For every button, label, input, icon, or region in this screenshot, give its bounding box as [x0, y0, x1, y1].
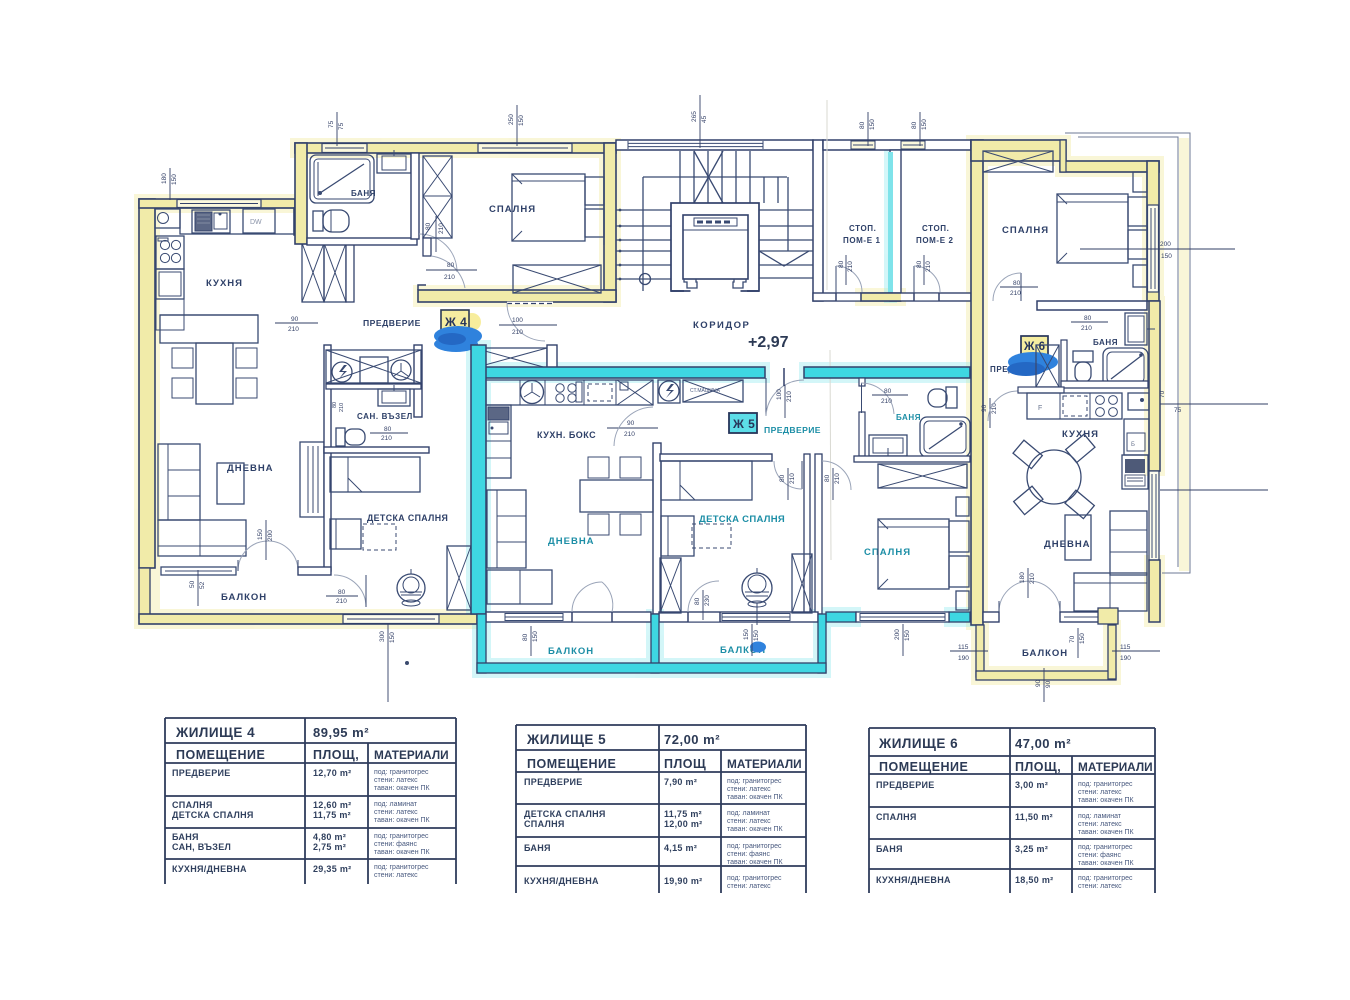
svg-text:СПАЛНЯ: СПАЛНЯ: [876, 812, 917, 822]
svg-text:стени: латекс: стени: латекс: [727, 786, 771, 793]
svg-text:стени: латекс: стени: латекс: [1078, 821, 1122, 828]
svg-text:под: ламинат: под: ламинат: [374, 801, 418, 808]
svg-text:150: 150: [743, 629, 750, 640]
svg-text:ДЕТСКА СПАЛНЯ: ДЕТСКА СПАЛНЯ: [367, 513, 448, 523]
svg-text:12,70 m²: 12,70 m²: [313, 768, 351, 778]
svg-text:ПОМЕЩЕНИЕ: ПОМЕЩЕНИЕ: [527, 757, 616, 771]
svg-text:под: гранитогрес: под: гранитогрес: [1078, 875, 1133, 882]
svg-text:72,00 m²: 72,00 m²: [664, 732, 720, 747]
svg-text:200: 200: [267, 530, 274, 541]
svg-text:ДЕТСКА СПАЛНЯ: ДЕТСКА СПАЛНЯ: [524, 809, 606, 819]
svg-text:БАНЯ: БАНЯ: [1093, 338, 1118, 347]
svg-text:Ж 6: Ж 6: [1023, 341, 1046, 353]
svg-text:11,75 m²: 11,75 m²: [313, 810, 351, 820]
svg-text:150: 150: [518, 115, 525, 126]
svg-text:под: гранитогрес: под: гранитогрес: [727, 875, 782, 882]
svg-text:90: 90: [1035, 679, 1042, 687]
svg-text:115: 115: [958, 644, 969, 651]
svg-text:4,15 m²: 4,15 m²: [664, 843, 697, 853]
svg-text:210: 210: [881, 398, 892, 405]
svg-text:стени: латекс: стени: латекс: [727, 818, 771, 825]
svg-text:80: 80: [779, 474, 786, 482]
svg-text:7,90 m²: 7,90 m²: [664, 777, 697, 787]
svg-text:МАТЕРИАЛИ: МАТЕРИАЛИ: [1078, 760, 1153, 774]
svg-text:210: 210: [336, 598, 347, 605]
svg-text:ПОМ-Е 2: ПОМ-Е 2: [916, 236, 954, 245]
svg-text:ПЛОЩ: ПЛОЩ: [664, 757, 706, 771]
svg-text:ПРЕДВЕРИЕ: ПРЕДВЕРИЕ: [524, 777, 583, 787]
svg-text:4,80 m²: 4,80 m²: [313, 832, 346, 842]
svg-text:БАЛКОН: БАЛКОН: [1022, 648, 1068, 659]
svg-text:150: 150: [921, 119, 928, 130]
svg-text:под: гранитогрес: под: гранитогрес: [727, 843, 782, 850]
svg-text:БАЛКОН: БАЛКОН: [548, 646, 594, 657]
svg-text:75: 75: [328, 120, 335, 128]
svg-text:150: 150: [389, 632, 396, 643]
svg-text:таван: окачен ПК: таван: окачен ПК: [374, 817, 431, 824]
svg-text:ПРЕДВЕРИЕ: ПРЕДВЕРИЕ: [172, 768, 231, 778]
svg-text:11,75 m²: 11,75 m²: [664, 809, 702, 819]
svg-text:180: 180: [1019, 572, 1026, 583]
svg-text:12,00 m²: 12,00 m²: [664, 819, 702, 829]
svg-text:45: 45: [701, 115, 708, 123]
svg-text:СПАЛНЯ: СПАЛНЯ: [172, 800, 213, 810]
svg-text:80: 80: [916, 260, 923, 268]
svg-text:БАНЯ: БАНЯ: [172, 832, 199, 842]
svg-text:11,50 m²: 11,50 m²: [1015, 812, 1053, 822]
svg-text:210: 210: [512, 329, 523, 336]
svg-text:КУХН. БОКС: КУХН. БОКС: [537, 430, 596, 440]
svg-text:под: гранитогрес: под: гранитогрес: [374, 864, 429, 871]
svg-text:29,35 m²: 29,35 m²: [313, 864, 351, 874]
svg-text:80: 80: [338, 589, 346, 596]
svg-text:90: 90: [1045, 680, 1052, 688]
svg-text:БАНЯ: БАНЯ: [896, 413, 921, 422]
svg-text:250: 250: [508, 114, 515, 125]
svg-text:210: 210: [288, 326, 299, 333]
svg-text:210: 210: [444, 274, 455, 281]
svg-text:БАНЯ: БАНЯ: [351, 189, 376, 198]
svg-text:150: 150: [1079, 633, 1086, 644]
svg-text:таван: окачен ПК: таван: окачен ПК: [1078, 829, 1135, 836]
svg-text:210: 210: [1081, 325, 1092, 332]
svg-text:80: 80: [447, 262, 455, 269]
svg-text:150: 150: [532, 631, 539, 642]
svg-text:СТ.МАШИНА: СТ.МАШИНА: [690, 388, 721, 394]
svg-text:ПЛОЩ,: ПЛОЩ,: [1015, 760, 1061, 774]
svg-text:стени: латекс: стени: латекс: [374, 872, 418, 879]
svg-text:210: 210: [834, 473, 841, 484]
svg-text:Б: Б: [1131, 442, 1135, 448]
svg-text:DW: DW: [250, 219, 262, 226]
svg-text:ПРЕДВЕРИЕ: ПРЕДВЕРИЕ: [764, 425, 821, 435]
svg-text:ЖИЛИЩЕ 5: ЖИЛИЩЕ 5: [526, 732, 606, 747]
svg-text:150: 150: [869, 119, 876, 130]
svg-text:80: 80: [911, 121, 918, 129]
svg-text:КУХНЯ: КУХНЯ: [206, 278, 243, 289]
svg-text:таван: окачен ПК: таван: окачен ПК: [374, 785, 431, 792]
svg-text:СТОП.: СТОП.: [922, 224, 949, 233]
svg-text:90: 90: [291, 316, 299, 323]
svg-text:100: 100: [512, 317, 523, 324]
svg-text:90: 90: [981, 404, 988, 412]
svg-text:70: 70: [1159, 390, 1166, 398]
svg-text:ДЕТСКА СПАЛНЯ: ДЕТСКА СПАЛНЯ: [172, 810, 254, 820]
svg-text:+2,97: +2,97: [748, 334, 789, 351]
svg-text:стени: латекс: стени: латекс: [1078, 789, 1122, 796]
svg-text:80: 80: [522, 633, 529, 641]
svg-text:стени: латекс: стени: латекс: [727, 883, 771, 890]
svg-text:БАЛКОН: БАЛКОН: [221, 592, 267, 603]
svg-text:таван: окачен ПК: таван: окачен ПК: [1078, 797, 1135, 804]
svg-text:75: 75: [338, 122, 345, 130]
svg-text:210: 210: [925, 261, 932, 272]
svg-text:190: 190: [958, 655, 969, 662]
svg-text:80: 80: [694, 597, 701, 605]
svg-text:Ж 5: Ж 5: [732, 417, 755, 431]
svg-text:ПЛОЩ,: ПЛОЩ,: [313, 748, 359, 762]
svg-text:80: 80: [384, 426, 392, 433]
svg-text:89,95 m²: 89,95 m²: [313, 725, 369, 740]
svg-text:СТОП.: СТОП.: [849, 224, 876, 233]
svg-text:80: 80: [859, 121, 866, 129]
svg-text:таван: окачен ПК: таван: окачен ПК: [727, 794, 784, 801]
svg-text:80: 80: [332, 402, 338, 408]
svg-text:210: 210: [1010, 290, 1021, 297]
svg-text:ПОМЕЩЕНИЕ: ПОМЕЩЕНИЕ: [879, 760, 968, 774]
svg-text:150: 150: [753, 630, 760, 641]
svg-text:210: 210: [991, 403, 998, 414]
svg-text:ПОМ-Е 1: ПОМ-Е 1: [843, 236, 881, 245]
svg-text:ДНЕВНА: ДНЕВНА: [548, 536, 595, 547]
svg-text:150: 150: [1161, 253, 1172, 260]
svg-text:210: 210: [624, 431, 635, 438]
svg-text:70: 70: [1069, 635, 1076, 643]
svg-text:ПРЕДВЕРИЕ: ПРЕДВЕРИЕ: [363, 318, 421, 328]
svg-text:ЖИЛИЩЕ 6: ЖИЛИЩЕ 6: [878, 736, 958, 751]
svg-text:стени: фаянс: стени: фаянс: [727, 851, 770, 858]
svg-text:под: гранитогрес: под: гранитогрес: [374, 769, 429, 776]
svg-text:230: 230: [704, 595, 711, 606]
svg-text:80: 80: [1084, 315, 1092, 322]
svg-text:под: гранитогрес: под: гранитогрес: [1078, 844, 1133, 851]
svg-text:таван: окачен ПК: таван: окачен ПК: [727, 826, 784, 833]
svg-text:таван: окачен ПК: таван: окачен ПК: [1078, 860, 1135, 867]
svg-text:САН, ВЪЗЕЛ: САН, ВЪЗЕЛ: [172, 842, 231, 852]
svg-text:210: 210: [847, 261, 854, 272]
svg-text:150: 150: [904, 630, 911, 641]
svg-text:таван: окачен ПК: таван: окачен ПК: [374, 849, 431, 856]
svg-text:190: 190: [1120, 655, 1131, 662]
svg-text:стени: латекс: стени: латекс: [374, 809, 418, 816]
svg-text:180: 180: [161, 173, 168, 184]
svg-text:210: 210: [381, 435, 392, 442]
svg-text:80: 80: [1013, 280, 1021, 287]
svg-text:стени: фаянс: стени: фаянс: [1078, 852, 1121, 859]
svg-text:МАТЕРИАЛИ: МАТЕРИАЛИ: [727, 757, 802, 771]
svg-text:100: 100: [776, 389, 783, 400]
svg-text:ЖИЛИЩЕ 4: ЖИЛИЩЕ 4: [175, 725, 255, 740]
svg-text:115: 115: [1120, 644, 1131, 651]
svg-text:под: ламинат: под: ламинат: [727, 810, 771, 817]
svg-text:КУХНЯ: КУХНЯ: [1062, 429, 1099, 440]
svg-text:БАНЯ: БАНЯ: [876, 844, 903, 854]
svg-text:стени: фаянс: стени: фаянс: [374, 841, 417, 848]
svg-text:80: 80: [824, 474, 831, 482]
svg-text:ДНЕВНА: ДНЕВНА: [1044, 539, 1091, 550]
svg-text:стени: латекс: стени: латекс: [1078, 883, 1122, 890]
svg-text:18,50 m²: 18,50 m²: [1015, 875, 1053, 885]
svg-text:300: 300: [379, 631, 386, 642]
svg-text:ПРЕДВЕРИЕ: ПРЕДВЕРИЕ: [876, 780, 935, 790]
svg-text:под: ламинат: под: ламинат: [1078, 813, 1122, 820]
svg-text:ПОМЕЩЕНИЕ: ПОМЕЩЕНИЕ: [176, 748, 265, 762]
svg-text:стени: латекс: стени: латекс: [374, 777, 418, 784]
svg-text:МАТЕРИАЛИ: МАТЕРИАЛИ: [374, 748, 449, 762]
svg-text:F: F: [1038, 405, 1042, 412]
svg-text:САН. ВЪЗЕЛ: САН. ВЪЗЕЛ: [357, 412, 413, 421]
svg-text:таван: окачен ПК: таван: окачен ПК: [727, 859, 784, 866]
svg-text:150: 150: [257, 529, 264, 540]
svg-text:2,75 m²: 2,75 m²: [313, 842, 346, 852]
svg-text:КУХНЯ/ДНЕВНА: КУХНЯ/ДНЕВНА: [172, 864, 247, 874]
svg-text:3,00 m²: 3,00 m²: [1015, 780, 1048, 790]
svg-text:150: 150: [171, 174, 178, 185]
svg-text:210: 210: [1029, 573, 1036, 584]
svg-text:КОРИДОР: КОРИДОР: [693, 320, 750, 331]
svg-text:19,90 m²: 19,90 m²: [664, 876, 702, 886]
svg-text:200: 200: [1160, 241, 1171, 248]
svg-text:СПАЛНЯ: СПАЛНЯ: [524, 819, 565, 829]
svg-text:СПАЛНЯ: СПАЛНЯ: [1002, 225, 1049, 236]
svg-text:200: 200: [894, 629, 901, 640]
svg-text:БАНЯ: БАНЯ: [524, 843, 551, 853]
svg-text:КУХНЯ/ДНЕВНА: КУХНЯ/ДНЕВНА: [524, 876, 599, 886]
svg-text:под: гранитогрес: под: гранитогрес: [727, 778, 782, 785]
svg-text:под: гранитогрес: под: гранитогрес: [1078, 781, 1133, 788]
svg-text:52: 52: [199, 581, 206, 589]
svg-text:80: 80: [838, 260, 845, 268]
svg-text:75: 75: [1174, 407, 1182, 414]
svg-text:под: гранитогрес: под: гранитогрес: [374, 833, 429, 840]
svg-text:50: 50: [189, 580, 196, 588]
svg-text:80: 80: [884, 388, 892, 395]
svg-text:210: 210: [786, 391, 793, 402]
svg-text:ДЕТСКА СПАЛНЯ: ДЕТСКА СПАЛНЯ: [699, 514, 785, 525]
svg-text:90: 90: [627, 420, 635, 427]
svg-text:47,00 m²: 47,00 m²: [1015, 736, 1071, 751]
svg-text:КУХНЯ/ДНЕВНА: КУХНЯ/ДНЕВНА: [876, 875, 951, 885]
svg-text:СПАЛНЯ: СПАЛНЯ: [864, 547, 911, 558]
svg-text:210: 210: [789, 473, 796, 484]
svg-text:265: 265: [691, 111, 698, 122]
svg-text:3,25 m²: 3,25 m²: [1015, 844, 1048, 854]
svg-text:210: 210: [438, 223, 445, 234]
svg-text:12,60 m²: 12,60 m²: [313, 800, 351, 810]
svg-text:ДНЕВНА: ДНЕВНА: [227, 463, 274, 474]
svg-text:210: 210: [339, 403, 345, 412]
